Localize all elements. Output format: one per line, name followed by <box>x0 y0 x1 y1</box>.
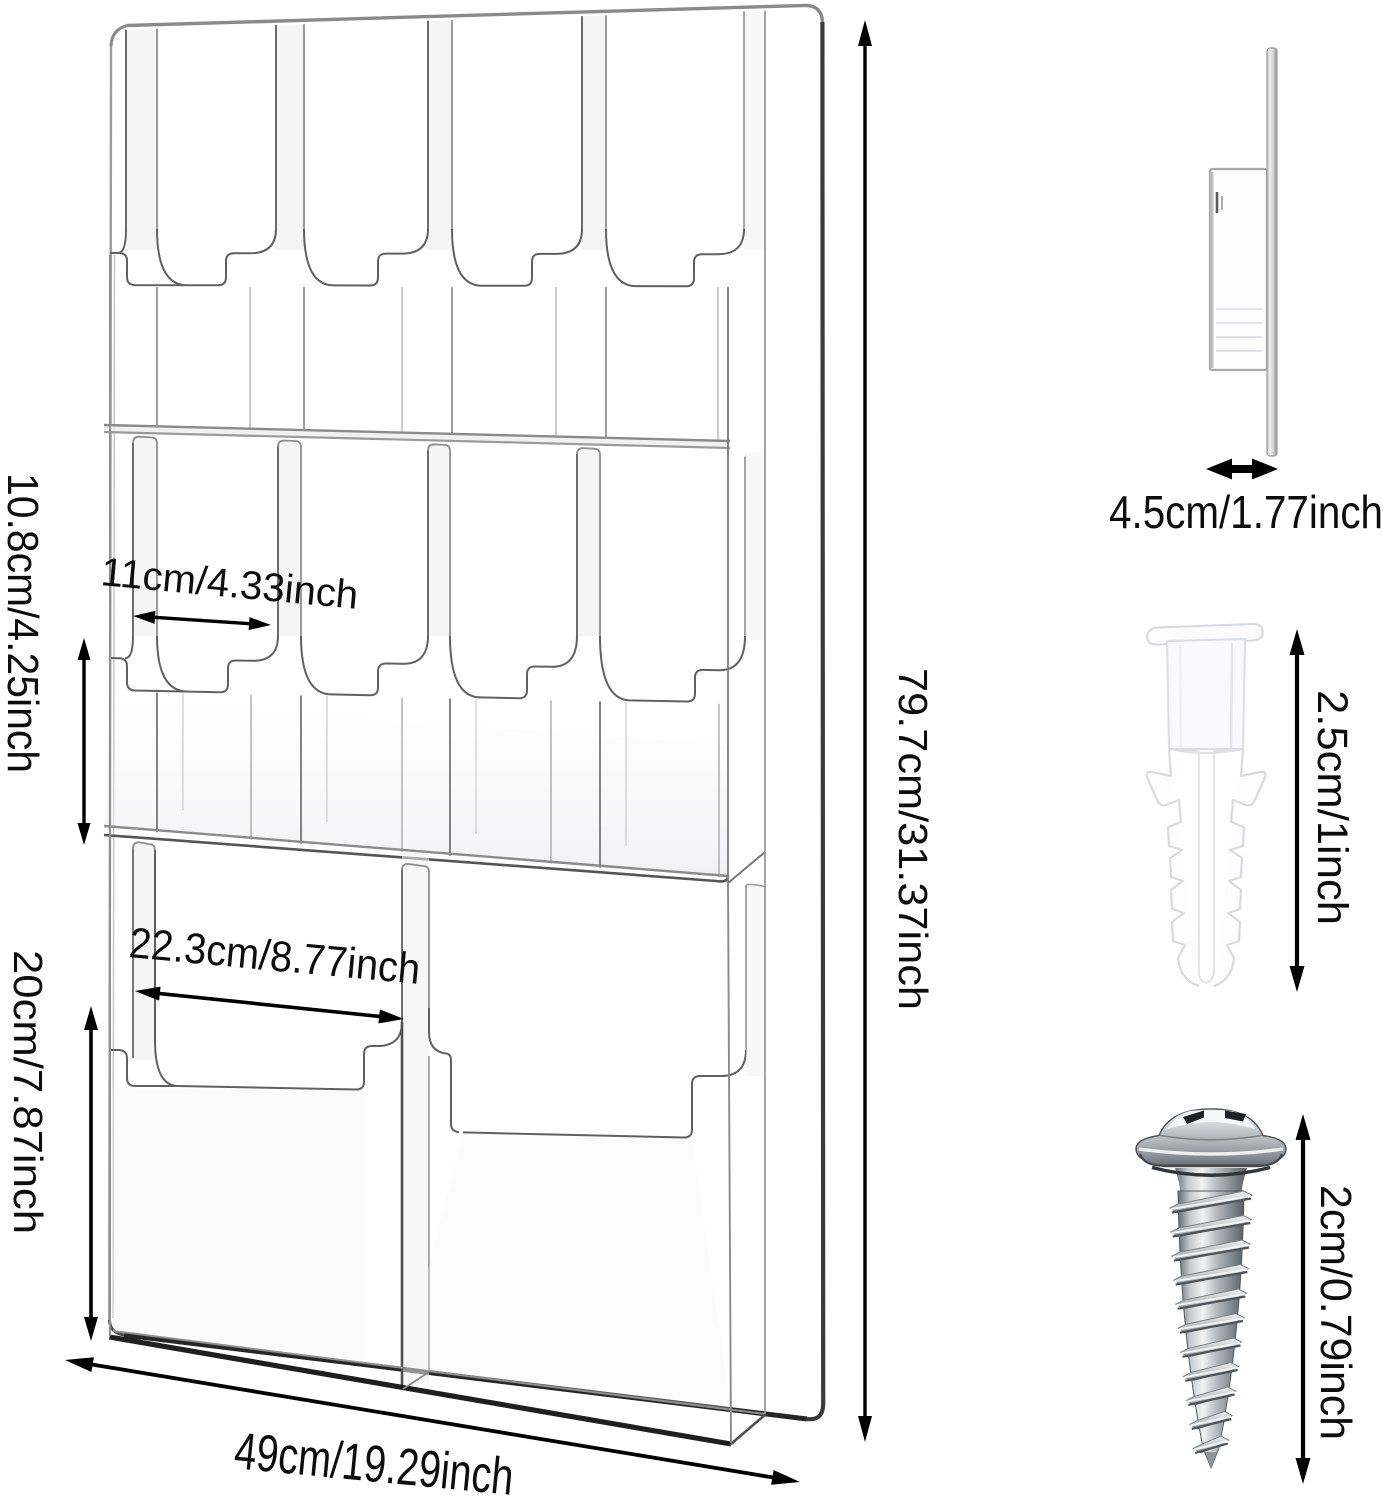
svg-text:4.5cm/1.77inch: 4.5cm/1.77inch <box>1109 486 1383 538</box>
svg-text:79.7cm/31.37inch: 79.7cm/31.37inch <box>890 668 936 1010</box>
svg-text:2.5cm/1inch: 2.5cm/1inch <box>1308 690 1356 925</box>
svg-text:20cm/7.87inch: 20cm/7.87inch <box>5 950 51 1234</box>
svg-text:2cm/0.79inch: 2cm/0.79inch <box>1311 1185 1360 1440</box>
svg-text:49cm/19.29inch: 49cm/19.29inch <box>232 1422 516 1500</box>
svg-text:10.8cm/4.25inch: 10.8cm/4.25inch <box>0 473 47 773</box>
